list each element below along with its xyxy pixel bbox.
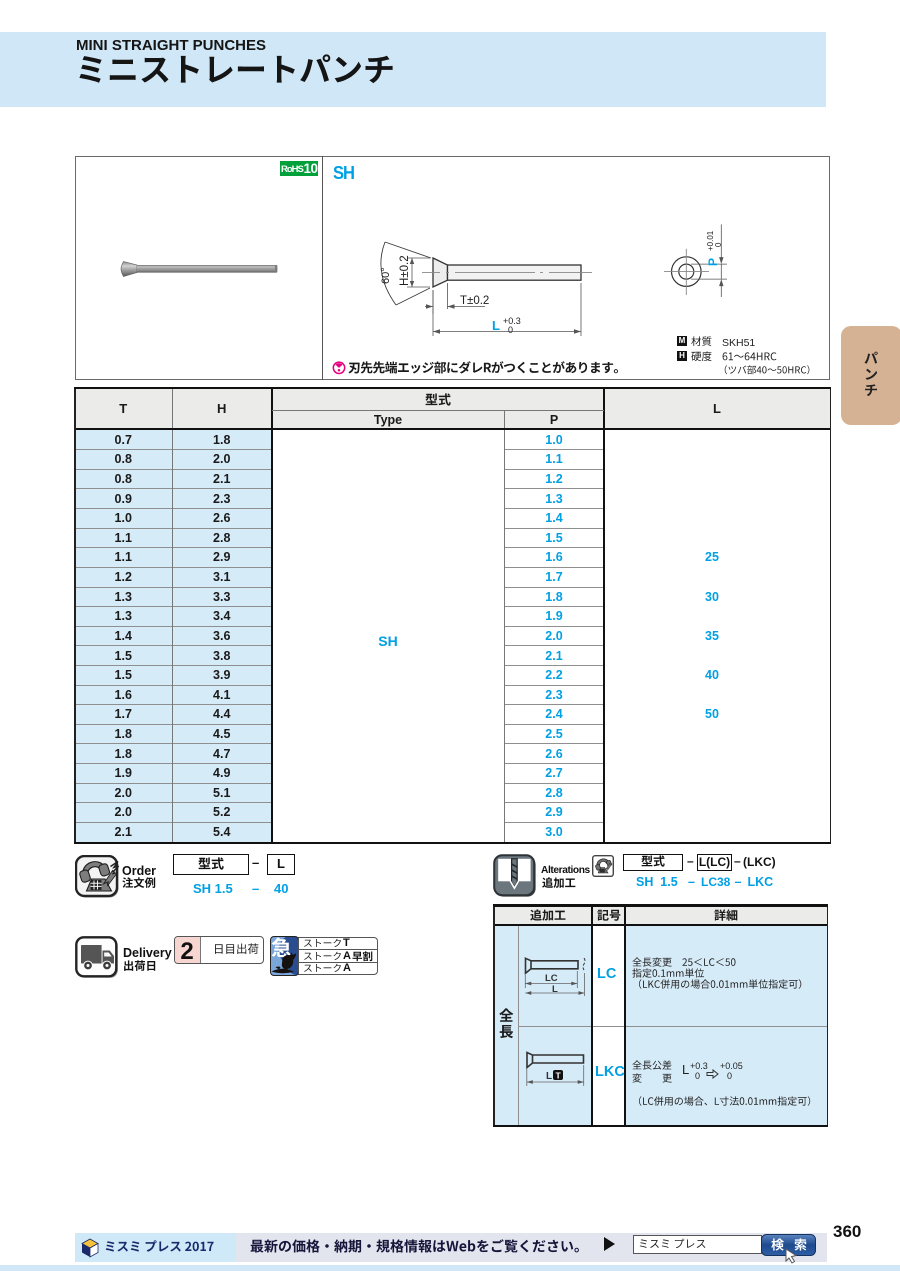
svg-text:60°: 60°	[380, 267, 392, 284]
svg-text:L: L	[492, 318, 500, 333]
svg-text:0: 0	[508, 325, 513, 335]
svg-text:0: 0	[714, 242, 723, 247]
svg-text:T: T	[555, 1071, 561, 1081]
svg-text:H±0.2: H±0.2	[399, 255, 411, 286]
svg-text:T±0.2: T±0.2	[460, 295, 489, 307]
svg-text:LC: LC	[545, 973, 558, 984]
svg-text:P: P	[706, 258, 720, 266]
svg-text:L: L	[552, 984, 558, 995]
svg-text:L: L	[546, 1071, 552, 1082]
